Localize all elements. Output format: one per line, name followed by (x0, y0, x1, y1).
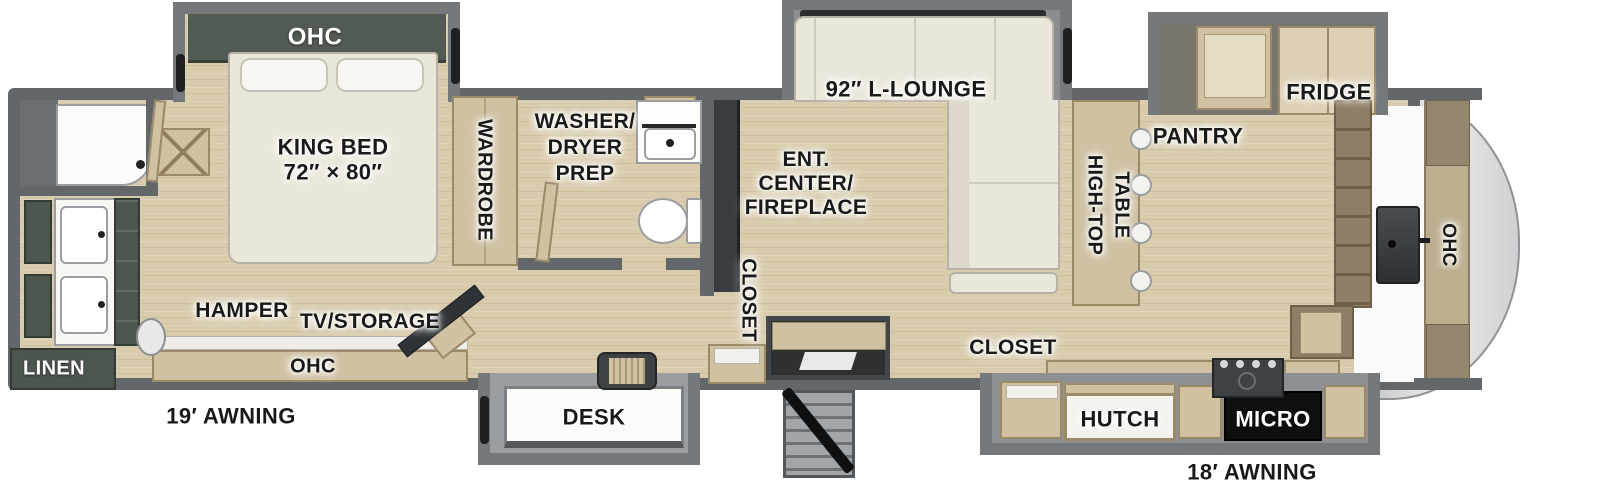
kitchen-sink (1376, 206, 1420, 284)
entry-closet-label: CLOSET (738, 258, 759, 342)
hutch-slide-wall-bottom (980, 443, 1380, 455)
stove-knob-3 (1252, 360, 1260, 368)
midbath-bottom-wall-left (518, 258, 622, 270)
bedroom-ohc-lower-label: OHC (290, 357, 336, 378)
entertainment-center (714, 100, 740, 292)
bath-medicine-cabinet-upper (24, 200, 52, 264)
bedroom-slide-window-left (176, 54, 185, 92)
kitchen-closet-label: CLOSET (969, 337, 1057, 359)
desk-label: DESK (563, 405, 626, 428)
midbath-sink-drain (666, 139, 674, 147)
kitchen-sink-faucet (1418, 238, 1430, 243)
fridge-slide-wall-right (1376, 12, 1388, 115)
fridge-slide-wall-left (1148, 12, 1160, 115)
high-top-label-line1: HIGH-TOP (1084, 155, 1105, 256)
high-top-label-line2: TABLE (1111, 171, 1132, 238)
high-top-stool-4 (1130, 270, 1152, 292)
kitchen-lower-cabinet-door (1300, 312, 1342, 354)
high-top-stool-3 (1130, 222, 1152, 244)
bath-faucet-upper (98, 231, 105, 238)
bed-pillow-left (240, 58, 328, 92)
front-ohc-label: OHC (1438, 223, 1458, 266)
shower-drain (136, 160, 145, 169)
hamper-label: HAMPER (195, 300, 288, 322)
micro-side-cabinet (1324, 385, 1366, 439)
bath-wall-under-shower (8, 186, 158, 196)
bedroom-slide-wall-top (173, 2, 460, 14)
king-bed-size-label: 72″ × 80″ (284, 160, 383, 183)
bath-tall-cabinet (114, 198, 140, 346)
bath-medicine-cabinet-lower (24, 274, 52, 338)
high-top-stool-1 (1130, 128, 1152, 150)
l-lounge-chaise (947, 100, 1060, 270)
king-bed-label: KING BED (278, 135, 389, 158)
entry-landing-step (799, 352, 857, 370)
closet-cabinet-top (1006, 385, 1058, 399)
bath-wall-filler (20, 100, 58, 186)
lounge-slide-wall-left (782, 0, 794, 100)
kitchen-tall-cabinet (1334, 100, 1372, 308)
stove-knob-2 (1236, 360, 1244, 368)
ent-center-label-line3: FIREPLACE (745, 197, 868, 219)
kitchen-sink-drain (1388, 240, 1396, 248)
pantry-label: PANTRY (1153, 124, 1243, 147)
desk-chair-seat (609, 358, 645, 384)
ent-center-label-line2: CENTER/ (759, 173, 854, 195)
toilet-tank (686, 198, 702, 244)
shower (56, 104, 152, 186)
bedroom-ohc-label: OHC (288, 24, 343, 49)
hamper (136, 318, 166, 356)
high-top-stool-2 (1130, 174, 1152, 196)
stove-knob-4 (1268, 360, 1276, 368)
tv-storage-label: TV/STORAGE (300, 311, 440, 333)
pantry-cabinet-panel (1204, 34, 1266, 98)
desk-slide-wall-bottom (478, 453, 700, 465)
cap-wall-bottom (1414, 378, 1482, 390)
linen-label: LINEN (23, 359, 85, 380)
wardrobe-label: WARDROBE (474, 119, 495, 241)
fridge-label: FRIDGE (1286, 80, 1372, 103)
bedroom-slide-window-right (451, 28, 460, 84)
midbath-bottom-wall-right (666, 258, 714, 270)
stove-burner (1238, 372, 1256, 390)
cap-wall-top (1414, 88, 1482, 100)
bedroom-nightstand (156, 128, 210, 176)
hutch-label: HUTCH (1081, 407, 1160, 430)
ent-center-label-line1: ENT. (782, 149, 829, 171)
stove-knob-1 (1220, 360, 1228, 368)
toilet-bowl (638, 198, 688, 244)
entry-landing-panel (772, 322, 886, 350)
washer-dryer-label-line2: DRYER (548, 137, 623, 159)
entry-closet-top (714, 348, 760, 364)
washer-dryer-label-line1: WASHER/ (535, 111, 636, 133)
l-lounge-ottoman (949, 272, 1058, 294)
floorplan: OHC KING BED 72″ × 80″ WARDROBE HAMPER T… (0, 0, 1600, 487)
micro-label: MICRO (1235, 407, 1310, 430)
front-ohc-upper-block (1426, 100, 1470, 166)
awning-front-label: 18′ AWNING (1187, 460, 1316, 483)
awning-rear-label: 19′ AWNING (166, 404, 295, 427)
lounge-label: 92″ L-LOUNGE (826, 77, 987, 100)
bed-pillow-right (336, 58, 424, 92)
desk-slide-window (480, 396, 489, 444)
lounge-slide-window-right (1063, 28, 1072, 84)
lounge-slide-wall-top (782, 0, 1072, 10)
washer-dryer-label-line3: PREP (556, 163, 615, 185)
fridge-slide-wall-top (1148, 12, 1388, 24)
bath-faucet-lower (98, 301, 105, 308)
desk-slide-wall-right (688, 373, 700, 465)
